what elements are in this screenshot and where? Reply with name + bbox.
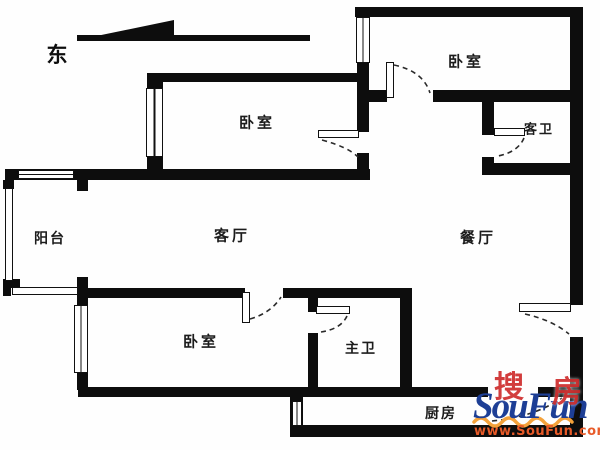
- door-arc: [250, 297, 281, 319]
- door-arc: [322, 140, 358, 157]
- compass-arrow-shaft: [77, 35, 310, 41]
- room-label-bedroom-top-right: 卧室: [448, 51, 484, 72]
- floor-plan: 东 卧室 卧室 客卫 阳台 客厅 餐厅 卧室 主卫 厨房 SouFun 搜 房 …: [0, 0, 600, 450]
- room-label-dining-room: 餐厅: [460, 227, 496, 248]
- room-label-living-room: 客厅: [214, 225, 250, 246]
- watermark-cn-second: 房: [552, 378, 582, 408]
- door-arc: [394, 65, 430, 93]
- room-label-guest-bath: 客卫: [524, 119, 554, 138]
- watermark-cn-first: 搜: [494, 373, 524, 403]
- room-label-bedroom-top-left: 卧室: [239, 112, 275, 133]
- compass-direction-label: 东: [47, 39, 68, 69]
- room-label-bedroom-bottom: 卧室: [183, 331, 219, 352]
- room-label-kitchen: 厨房: [425, 403, 457, 423]
- room-label-master-bath: 主卫: [345, 338, 377, 358]
- room-label-balcony: 阳台: [34, 228, 66, 248]
- watermark-url: www.SouFun.com: [474, 424, 600, 439]
- door-arc: [525, 314, 569, 334]
- door-arc: [498, 138, 524, 156]
- door-arc: [321, 316, 347, 332]
